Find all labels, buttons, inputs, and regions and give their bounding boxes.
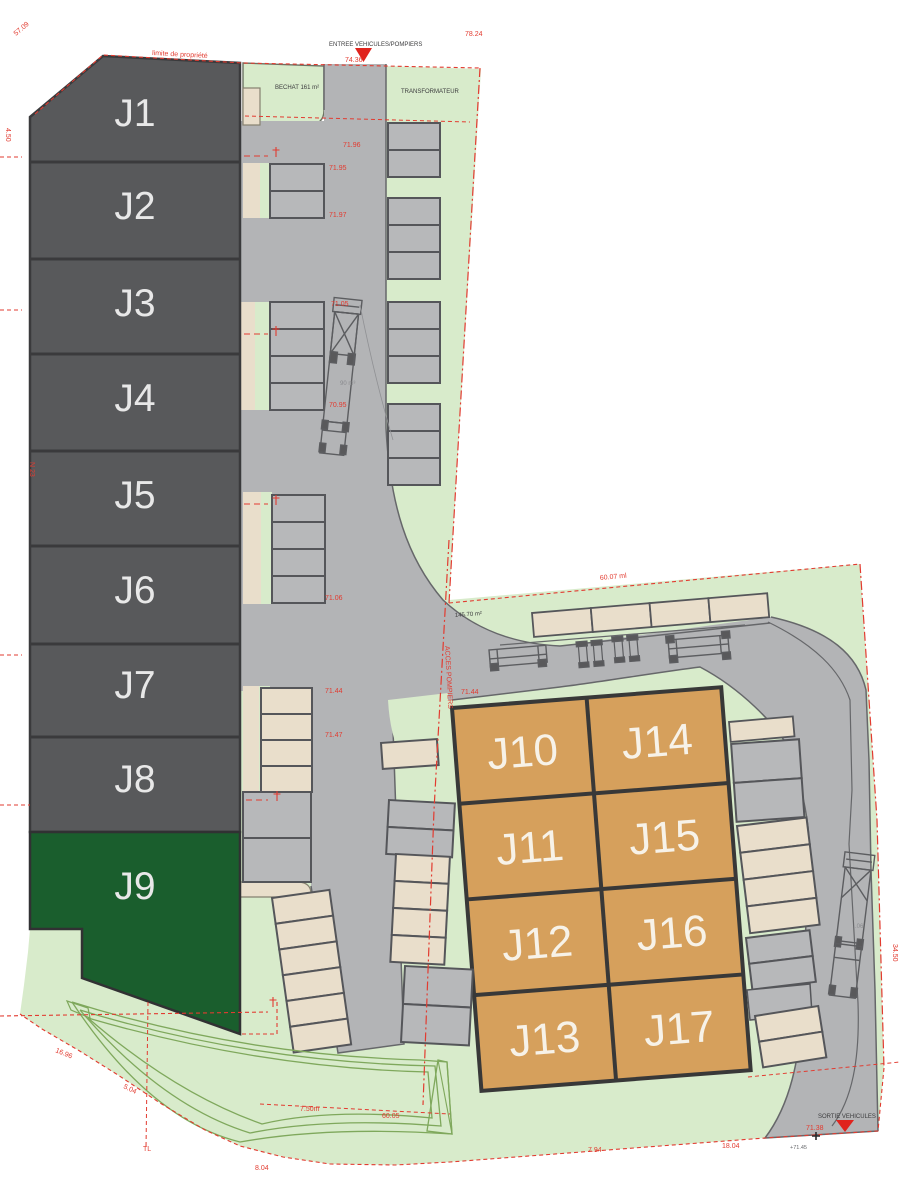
svg-text:71.96: 71.96 xyxy=(343,142,361,149)
svg-text:J8: J8 xyxy=(114,758,155,801)
svg-text:71.38: 71.38 xyxy=(806,1125,824,1132)
svg-text:J16: J16 xyxy=(635,906,710,960)
svg-text:.06: .06 xyxy=(855,924,864,930)
svg-text:J11: J11 xyxy=(494,821,565,875)
svg-text:71.06: 71.06 xyxy=(325,595,343,602)
svg-text:71.47: 71.47 xyxy=(325,732,343,739)
svg-text:+71.45: +71.45 xyxy=(790,1145,807,1151)
svg-text:J2: J2 xyxy=(114,185,155,228)
svg-text:TL: TL xyxy=(143,1146,151,1153)
svg-text:J13: J13 xyxy=(507,1012,582,1066)
svg-text:J14: J14 xyxy=(620,715,695,769)
svg-text:78.24: 78.24 xyxy=(465,31,483,38)
svg-text:J1: J1 xyxy=(114,92,155,135)
svg-text:TRANSFORMATEUR: TRANSFORMATEUR xyxy=(401,89,460,95)
svg-text:J10: J10 xyxy=(485,725,560,779)
svg-text:SORTIE VEHICULES: SORTIE VEHICULES xyxy=(818,1114,876,1120)
svg-text:N 23: N 23 xyxy=(28,462,35,477)
svg-text:18.04: 18.04 xyxy=(722,1143,740,1150)
svg-text:J3: J3 xyxy=(114,282,155,325)
svg-text:BECHAT 161 m²: BECHAT 161 m² xyxy=(275,85,319,91)
svg-text:71.44: 71.44 xyxy=(461,689,479,696)
svg-text:ENTREE VEHICULES/POMPIERS: ENTREE VEHICULES/POMPIERS xyxy=(329,42,422,48)
svg-text:71.44: 71.44 xyxy=(325,688,343,695)
svg-text:J15: J15 xyxy=(627,810,702,864)
svg-text:90 m³: 90 m³ xyxy=(340,381,355,387)
svg-text:J5: J5 xyxy=(114,474,155,517)
svg-text:71.95: 71.95 xyxy=(329,165,347,172)
svg-text:J9: J9 xyxy=(114,865,155,908)
svg-text:70.95: 70.95 xyxy=(329,402,347,409)
svg-text:71.97: 71.97 xyxy=(329,212,347,219)
svg-text:60.05: 60.05 xyxy=(382,1113,400,1120)
svg-text:74.36: 74.36 xyxy=(345,57,363,64)
svg-text:J6: J6 xyxy=(114,569,155,612)
svg-text:J4: J4 xyxy=(114,377,155,420)
svg-text:8.04: 8.04 xyxy=(255,1165,269,1172)
svg-text:7.94: 7.94 xyxy=(588,1147,602,1154)
svg-text:71.05: 71.05 xyxy=(331,301,349,308)
svg-text:J7: J7 xyxy=(114,664,155,707)
svg-text:34.50: 34.50 xyxy=(891,944,898,962)
svg-text:J12: J12 xyxy=(500,916,575,970)
svg-text:J17: J17 xyxy=(642,1002,717,1056)
svg-text:4.50: 4.50 xyxy=(4,128,11,142)
